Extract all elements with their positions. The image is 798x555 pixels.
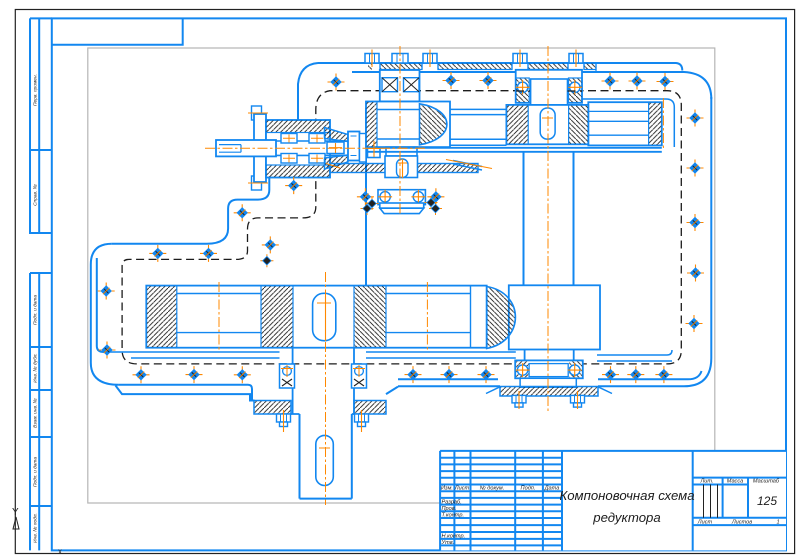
svg-text:Взам. инв. №: Взам. инв. № xyxy=(33,398,39,428)
svg-text:№ докум.: № докум. xyxy=(480,486,505,492)
svg-text:Н.контр.: Н.контр. xyxy=(442,533,466,539)
svg-text:Справ. №: Справ. № xyxy=(33,184,39,206)
svg-text:Компоновочная схема: Компоновочная схема xyxy=(559,488,694,503)
svg-text:Перв. примен.: Перв. примен. xyxy=(33,74,39,106)
svg-text:125: 125 xyxy=(757,494,777,508)
svg-text:Пров.: Пров. xyxy=(442,506,457,512)
svg-text:Изм.: Изм. xyxy=(441,486,453,492)
svg-text:Подп. и дата: Подп. и дата xyxy=(33,457,39,487)
svg-text:Лит.: Лит. xyxy=(699,479,713,485)
svg-text:редуктора: редуктора xyxy=(592,510,660,525)
svg-text:Листов: Листов xyxy=(731,519,752,525)
svg-text:Лист: Лист xyxy=(454,486,470,492)
svg-text:Инв. № дубл.: Инв. № дубл. xyxy=(33,353,39,383)
svg-text:Масса: Масса xyxy=(727,479,744,485)
svg-text:Инв. № подл.: Инв. № подл. xyxy=(33,513,39,543)
svg-text:Разраб.: Разраб. xyxy=(442,500,462,506)
svg-text:Т.контр.: Т.контр. xyxy=(442,513,465,519)
svg-text:Дата: Дата xyxy=(544,486,560,492)
svg-text:Утв.: Утв. xyxy=(441,540,455,546)
svg-text:Подп.: Подп. xyxy=(521,486,536,492)
svg-text:Лист: Лист xyxy=(697,519,713,525)
svg-text:1: 1 xyxy=(776,519,779,525)
svg-text:Подп. и дата: Подп. и дата xyxy=(33,295,39,325)
svg-text:Y: Y xyxy=(12,507,19,518)
svg-text:x: x xyxy=(58,547,62,555)
svg-text:Масштаб: Масштаб xyxy=(753,479,780,485)
